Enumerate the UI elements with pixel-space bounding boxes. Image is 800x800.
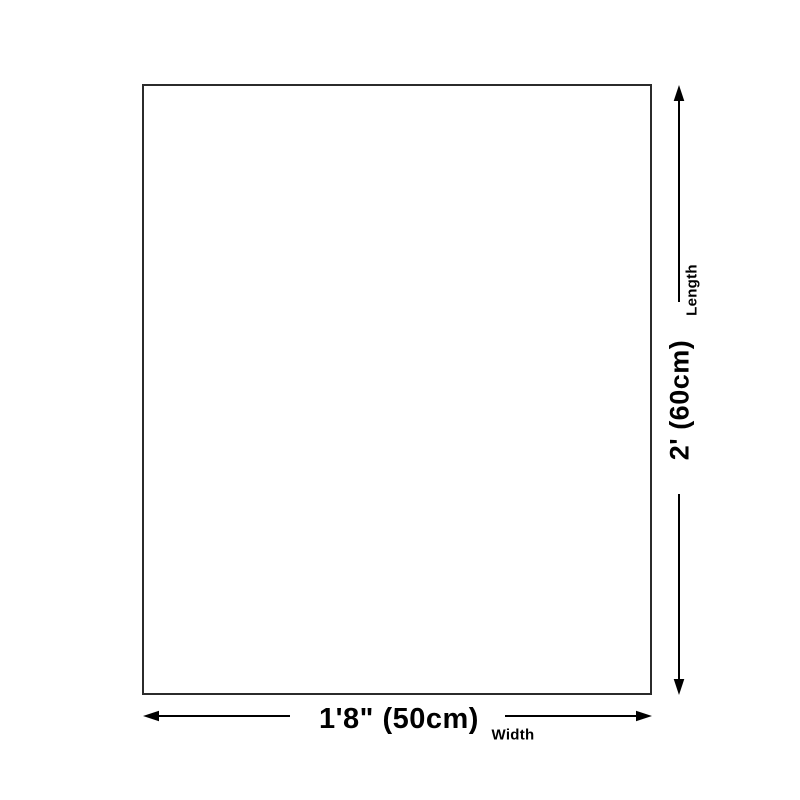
dimension-diagram: 2' (60cm) Length 1'8" (50cm) Width	[0, 0, 800, 800]
width-arrow-right-icon	[505, 709, 652, 723]
width-value-label: 1'8" (50cm)	[319, 703, 479, 736]
product-outline	[142, 84, 652, 695]
length-axis-label: Length	[684, 264, 701, 316]
width-arrow-left-icon	[143, 709, 290, 723]
width-axis-label: Width	[491, 727, 534, 744]
length-arrow-down-icon	[672, 494, 686, 695]
length-value-label: 2' (60cm)	[665, 340, 696, 460]
